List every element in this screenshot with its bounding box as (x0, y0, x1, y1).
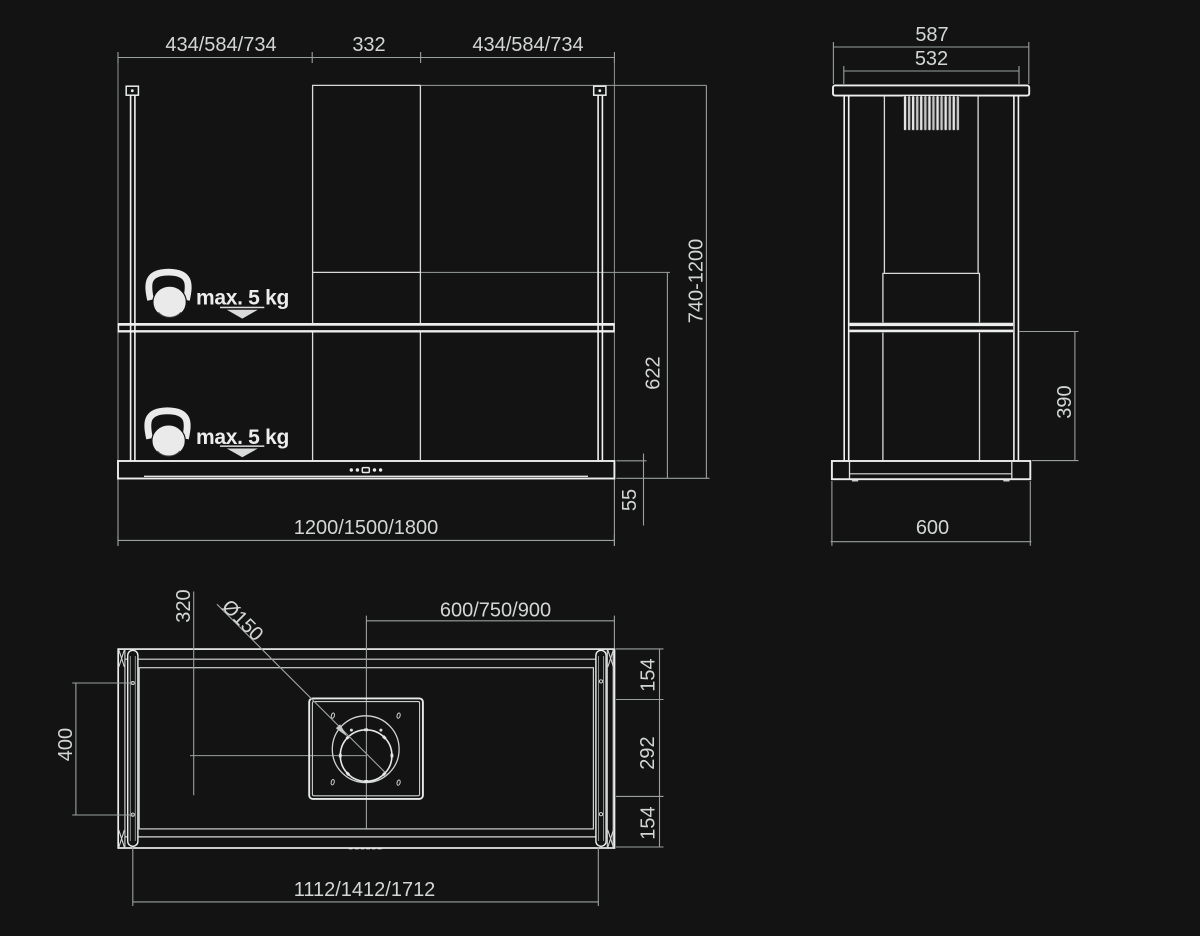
svg-text:154: 154 (638, 806, 660, 839)
svg-text:154: 154 (638, 658, 660, 691)
svg-text:600: 600 (916, 517, 949, 539)
svg-text:532: 532 (915, 48, 948, 70)
svg-text:1112/1412/1712: 1112/1412/1712 (294, 879, 436, 901)
svg-text:600/750/900: 600/750/900 (440, 600, 551, 622)
svg-text:55: 55 (619, 489, 641, 511)
svg-text:max. 5 kg: max. 5 kg (196, 287, 289, 310)
svg-text:390: 390 (1054, 385, 1076, 418)
svg-text:622: 622 (643, 356, 665, 389)
svg-text:332: 332 (352, 34, 385, 56)
svg-text:434/584/734: 434/584/734 (165, 34, 276, 56)
svg-text:292: 292 (637, 736, 659, 769)
svg-text:740-1200: 740-1200 (686, 239, 708, 324)
svg-text:400: 400 (55, 728, 77, 761)
svg-text:320: 320 (173, 589, 195, 622)
svg-text:434/584/734: 434/584/734 (472, 34, 583, 56)
svg-text:587: 587 (915, 24, 948, 46)
svg-text:1200/1500/1800: 1200/1500/1800 (294, 517, 439, 539)
